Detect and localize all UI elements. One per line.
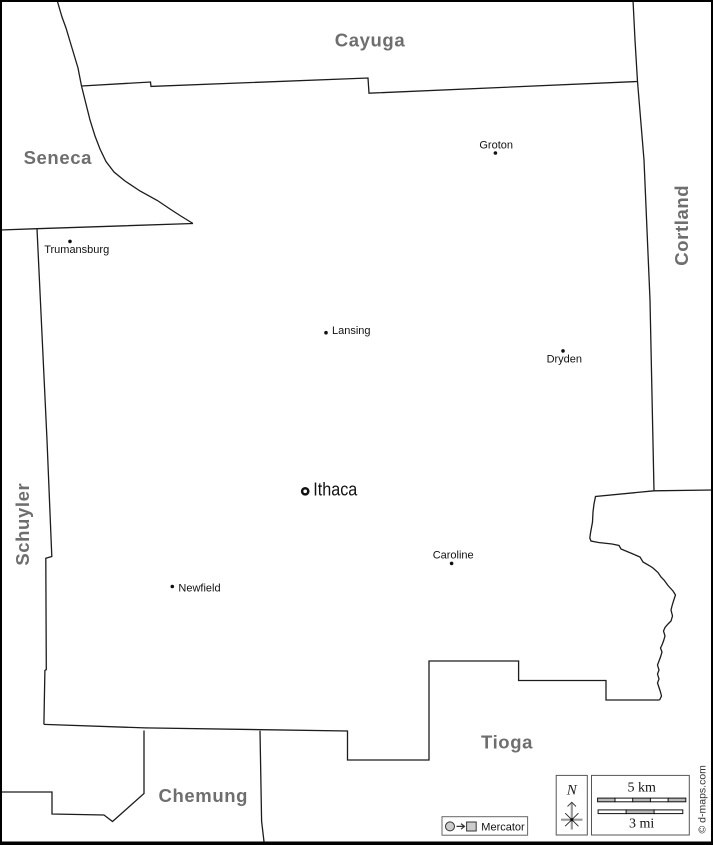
svg-text:3 mi: 3 mi xyxy=(629,817,654,832)
svg-text:Schuyler: Schuyler xyxy=(12,483,33,566)
svg-text:N: N xyxy=(566,783,578,799)
svg-text:Trumansburg: Trumansburg xyxy=(44,244,109,256)
svg-text:Lansing: Lansing xyxy=(332,325,371,337)
svg-text:Cortland: Cortland xyxy=(671,185,692,266)
svg-text:Ithaca: Ithaca xyxy=(313,479,358,500)
svg-text:Mercator: Mercator xyxy=(481,822,525,834)
svg-text:5 km: 5 km xyxy=(628,781,657,796)
svg-text:Dryden: Dryden xyxy=(547,353,582,365)
svg-text:Groton: Groton xyxy=(479,139,513,151)
svg-text:Seneca: Seneca xyxy=(24,147,93,168)
svg-text:Newfield: Newfield xyxy=(178,583,220,595)
svg-text:© d-maps.com: © d-maps.com xyxy=(697,765,709,834)
svg-text:Cayuga: Cayuga xyxy=(335,30,406,51)
svg-text:Chemung: Chemung xyxy=(159,785,249,806)
svg-text:Tioga: Tioga xyxy=(481,732,533,753)
svg-text:Caroline: Caroline xyxy=(433,549,474,561)
